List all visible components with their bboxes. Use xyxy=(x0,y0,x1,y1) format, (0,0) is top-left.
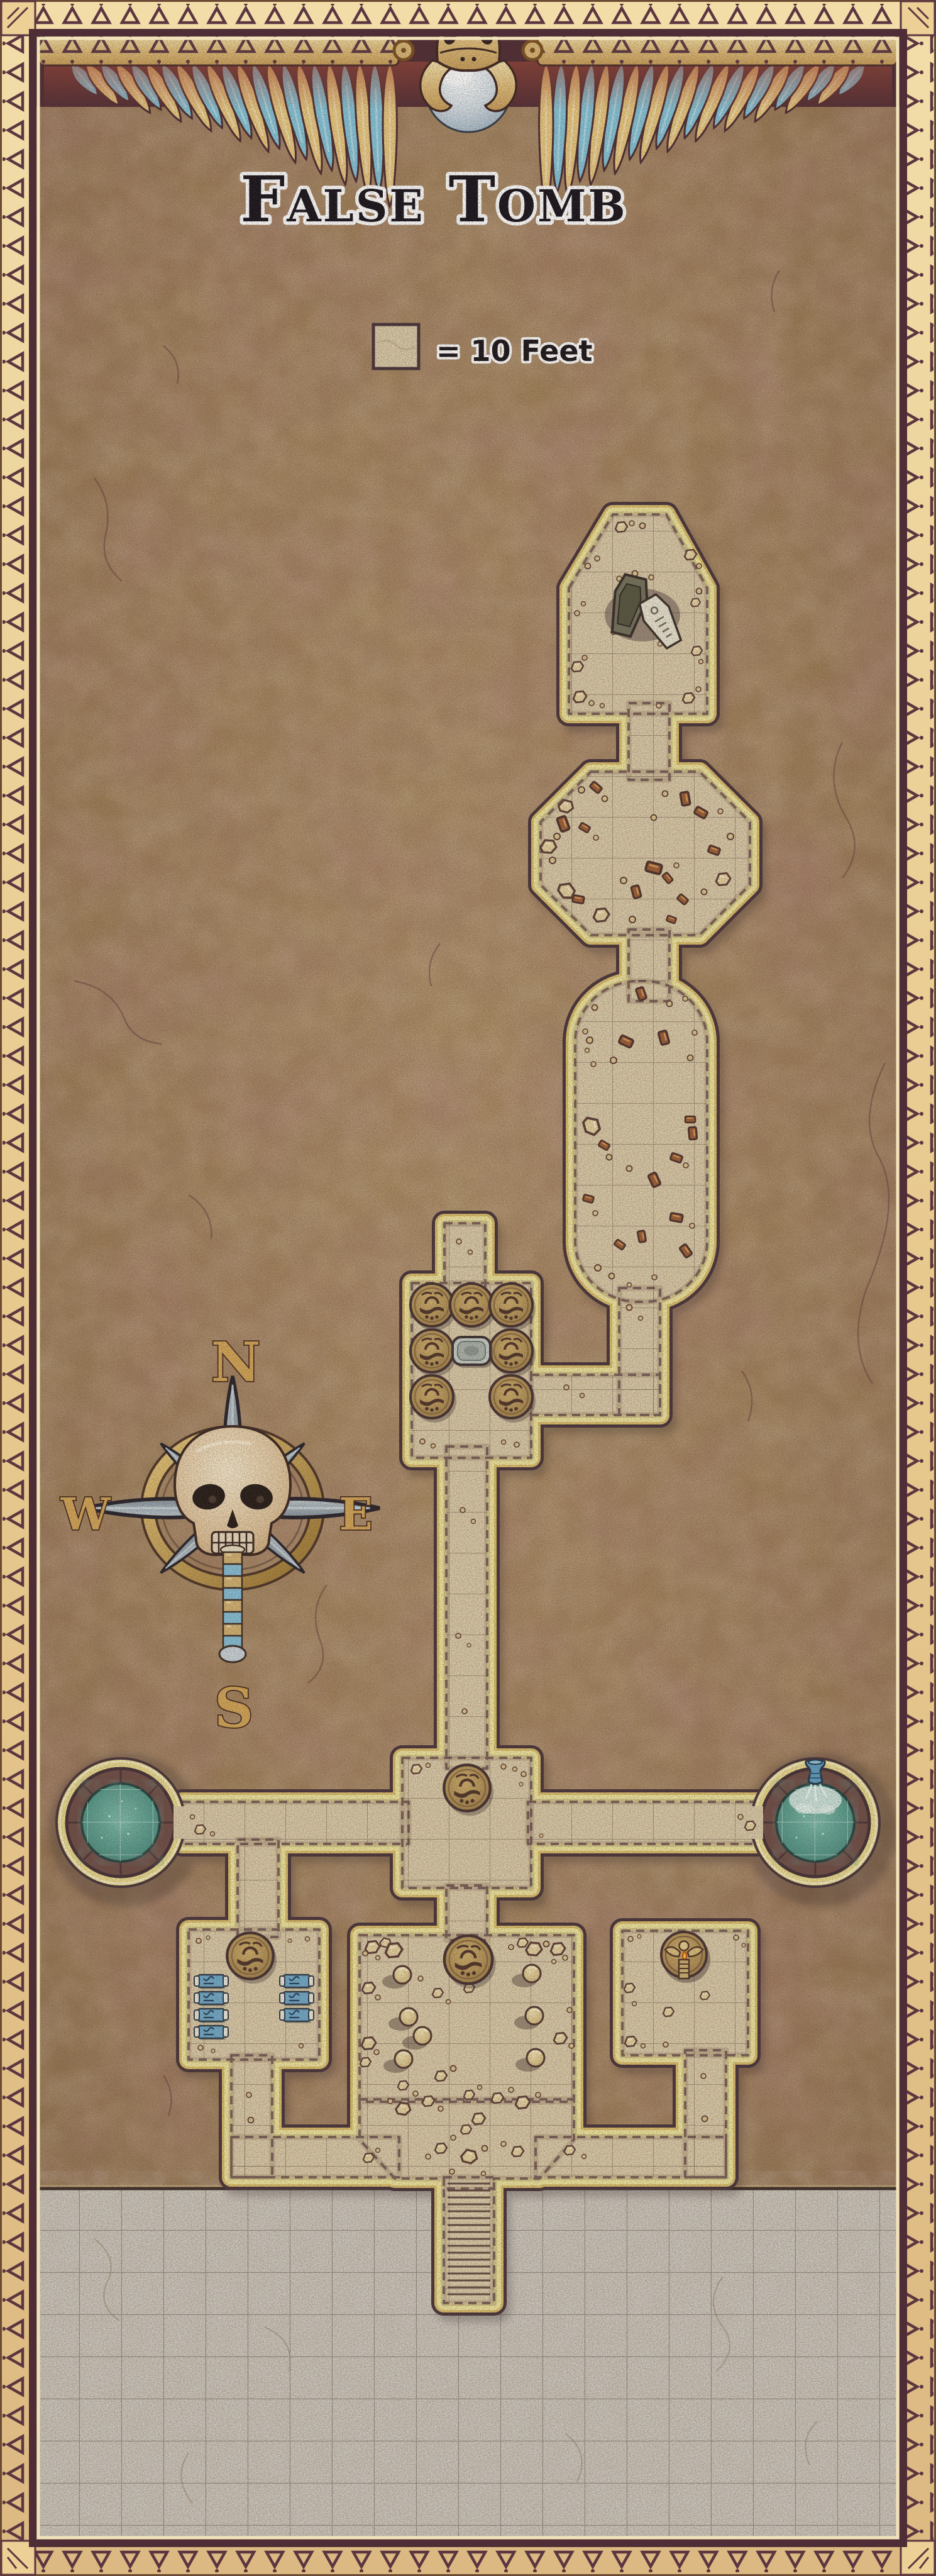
texture-grain xyxy=(35,35,901,2541)
map-canvas: N S W E False Tomb = 10 Feet xyxy=(0,0,936,2576)
battle-map-page: N S W E False Tomb = 10 Feet xyxy=(0,0,936,2576)
